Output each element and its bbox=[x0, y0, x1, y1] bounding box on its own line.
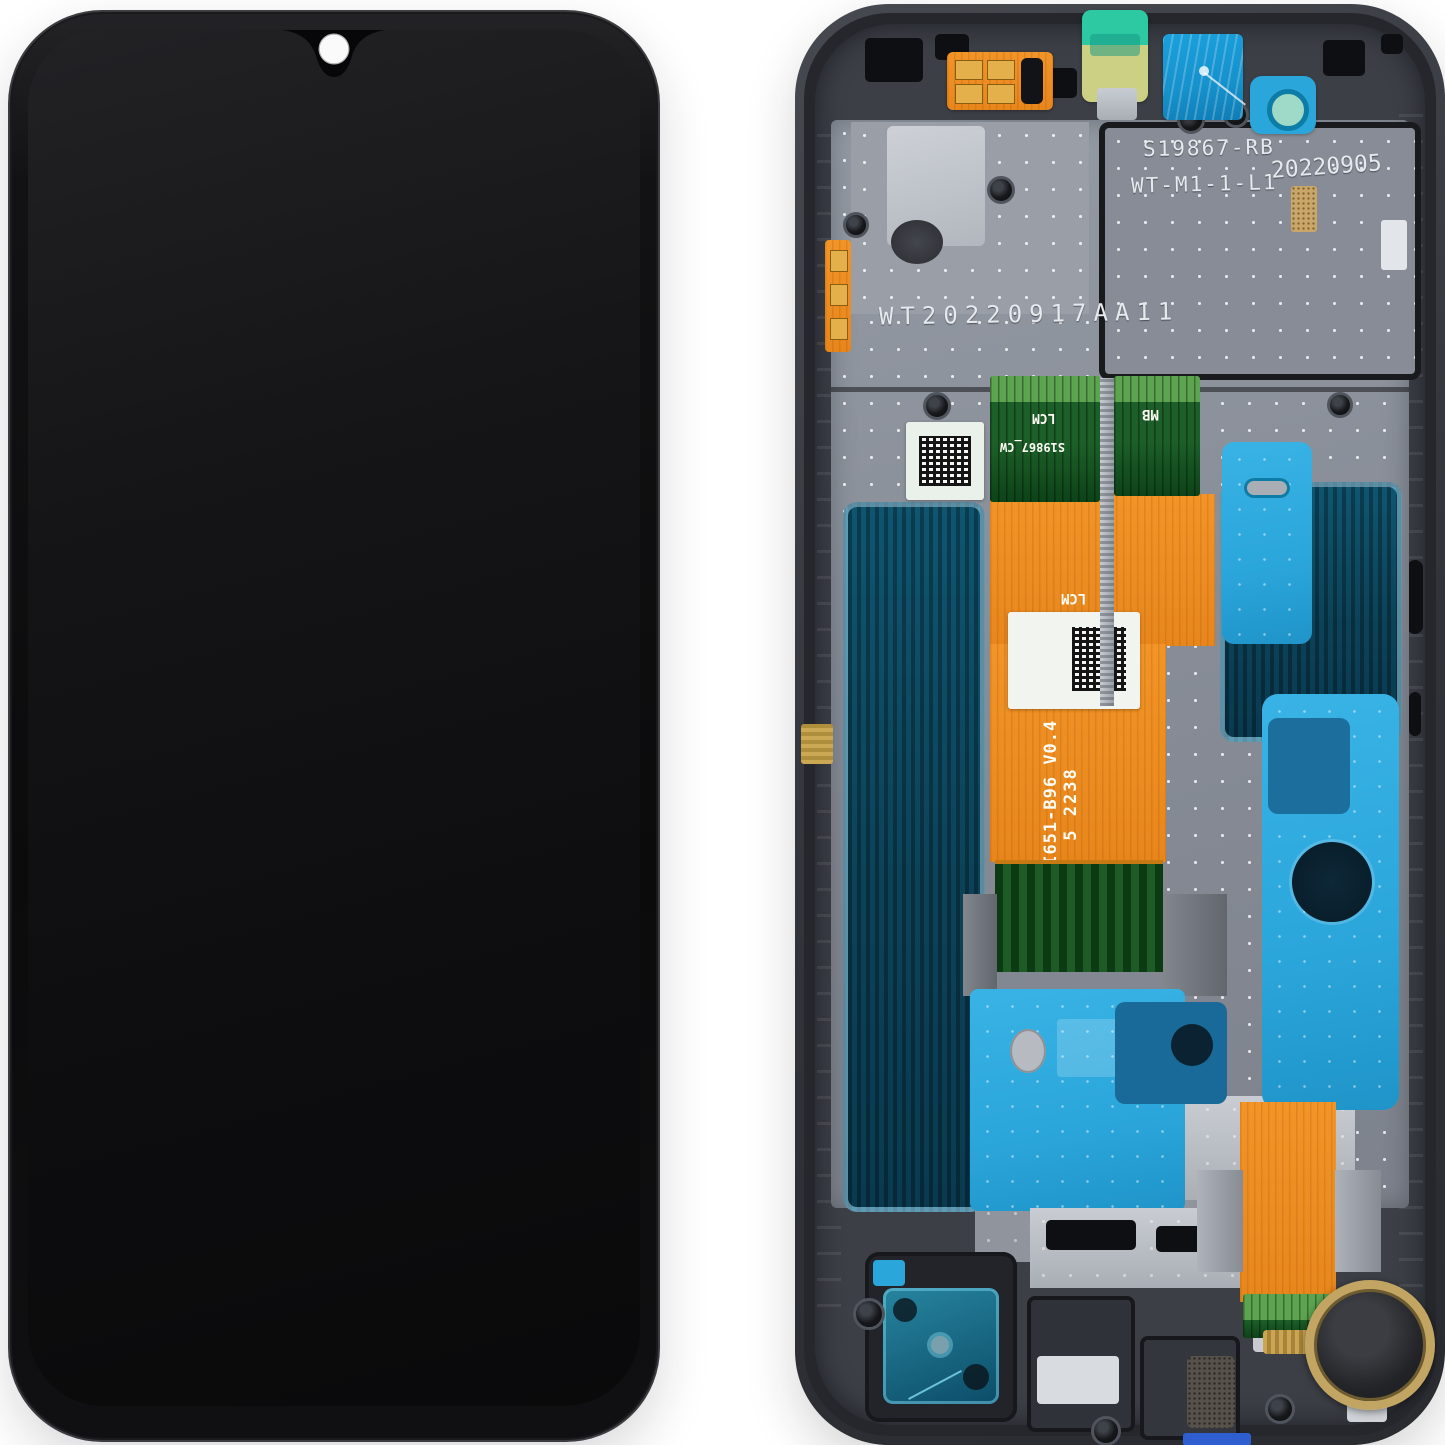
adhesive-hole bbox=[1171, 1024, 1213, 1066]
datamatrix-code bbox=[919, 436, 971, 486]
motor-flex-bracket-left bbox=[1197, 1170, 1243, 1272]
speaker-adhesive-bit bbox=[873, 1260, 905, 1286]
side-button-flex bbox=[825, 240, 851, 352]
adhesive-navy-square bbox=[1115, 1002, 1227, 1104]
speaker-center-post bbox=[931, 1336, 949, 1354]
cable-code-label: S19867_CW bbox=[1000, 440, 1065, 454]
gold-solder-patch bbox=[1291, 186, 1317, 232]
gold-contact-pad bbox=[987, 84, 1015, 104]
adhesive-overlay-square bbox=[1057, 1019, 1122, 1077]
connector-bracket-left bbox=[963, 894, 997, 996]
flex-fold-silver-strip bbox=[1100, 378, 1114, 706]
adhesive-slot-hole bbox=[1244, 478, 1290, 498]
adhesive-navy-tab bbox=[1268, 718, 1350, 814]
mainboard-flex-green-tail: MB bbox=[1114, 376, 1200, 496]
screw-hole bbox=[987, 176, 1015, 204]
speaker-corner-hole bbox=[963, 1364, 989, 1390]
top-cutout bbox=[1323, 40, 1365, 76]
gold-contact-pad bbox=[830, 318, 848, 340]
screw-hole bbox=[1327, 392, 1353, 418]
frame-serial-etched: WT20220917AA11 bbox=[879, 297, 1180, 330]
side-button-slot-2 bbox=[1409, 692, 1421, 736]
sticker-inner-band bbox=[1090, 34, 1140, 56]
vibration-motor bbox=[1305, 1280, 1435, 1410]
speaker-mesh-film bbox=[883, 1288, 999, 1404]
flex-datamatrix-label bbox=[1008, 612, 1140, 709]
plate-marking-line1: S19867-RB bbox=[1143, 135, 1275, 161]
speaker-corner-hole bbox=[893, 1298, 917, 1322]
screw-hole bbox=[923, 392, 951, 420]
motor-flex-bracket-right bbox=[1335, 1170, 1381, 1272]
side-button-slot bbox=[1407, 560, 1423, 634]
screw-boss bbox=[1265, 1394, 1295, 1424]
top-cutout bbox=[1381, 34, 1403, 54]
teardrop-notch bbox=[282, 30, 386, 80]
front-camera-sticker bbox=[1163, 34, 1243, 120]
plate-marking-date: 20220905 bbox=[1270, 150, 1382, 184]
gold-contact-pad bbox=[987, 60, 1015, 80]
adhesive-tab-with-slot bbox=[1222, 442, 1312, 644]
screw-hole bbox=[843, 212, 869, 238]
gold-contact-pad bbox=[830, 250, 848, 272]
lcm-flex-label: LCM bbox=[1061, 590, 1086, 606]
silver-oval-spacer bbox=[1010, 1029, 1046, 1073]
screw-boss bbox=[853, 1298, 885, 1330]
adhesive-round-hole bbox=[1292, 842, 1372, 922]
gold-contact-pad bbox=[830, 284, 848, 306]
glue-blob bbox=[1021, 58, 1043, 104]
display-front-view bbox=[8, 10, 660, 1442]
connector-bracket-right bbox=[1163, 894, 1227, 996]
etched-plate-recess: S19867-RB 20220905 WT-M1-1-L1 bbox=[1099, 122, 1421, 380]
plate-oval-cutout bbox=[891, 220, 943, 264]
gold-contact-pad bbox=[955, 60, 983, 80]
lcm-tail-label: LCM bbox=[1032, 410, 1055, 425]
platform-slot bbox=[1046, 1220, 1136, 1250]
flex-connector-green bbox=[995, 860, 1163, 972]
mainboard-tail-label: MB bbox=[1142, 406, 1159, 422]
earpiece-flex-contacts bbox=[947, 52, 1053, 110]
lcm-flex-green-tail: LCM S19867_CW bbox=[990, 376, 1100, 502]
speaker-film-crease bbox=[908, 1370, 962, 1400]
sticker-scratch-line bbox=[1204, 72, 1246, 106]
motor-flex-cable bbox=[1240, 1102, 1336, 1302]
screen-glass bbox=[28, 30, 640, 1406]
camera-hole-ring bbox=[1267, 89, 1309, 131]
white-pull-tab bbox=[1381, 220, 1407, 270]
bottom-blue-tab bbox=[1183, 1433, 1251, 1445]
battery-adhesive-blue-right bbox=[1262, 694, 1399, 1110]
barcode-sticker bbox=[906, 422, 984, 500]
gold-antenna-pad bbox=[801, 724, 833, 764]
dark-foam-pad bbox=[1187, 1356, 1235, 1428]
datamatrix-code bbox=[1072, 627, 1126, 691]
gold-contact-pad bbox=[955, 84, 983, 104]
top-cutout bbox=[865, 38, 923, 82]
graphite-panel-left bbox=[843, 502, 985, 1212]
plate-marking-line2: WT-M1-1-L1 bbox=[1131, 170, 1278, 198]
camera-hole-adhesive-tab bbox=[1250, 76, 1316, 134]
small-silver-shield bbox=[1097, 88, 1137, 120]
white-foam-patch bbox=[1037, 1356, 1119, 1404]
product-photo-lcd-assembly: S19867-RB 20220905 WT-M1-1-L1 WT20220917… bbox=[0, 0, 1445, 1445]
screw-boss bbox=[1091, 1416, 1121, 1445]
display-back-view: S19867-RB 20220905 WT-M1-1-L1 WT20220917… bbox=[795, 4, 1445, 1445]
